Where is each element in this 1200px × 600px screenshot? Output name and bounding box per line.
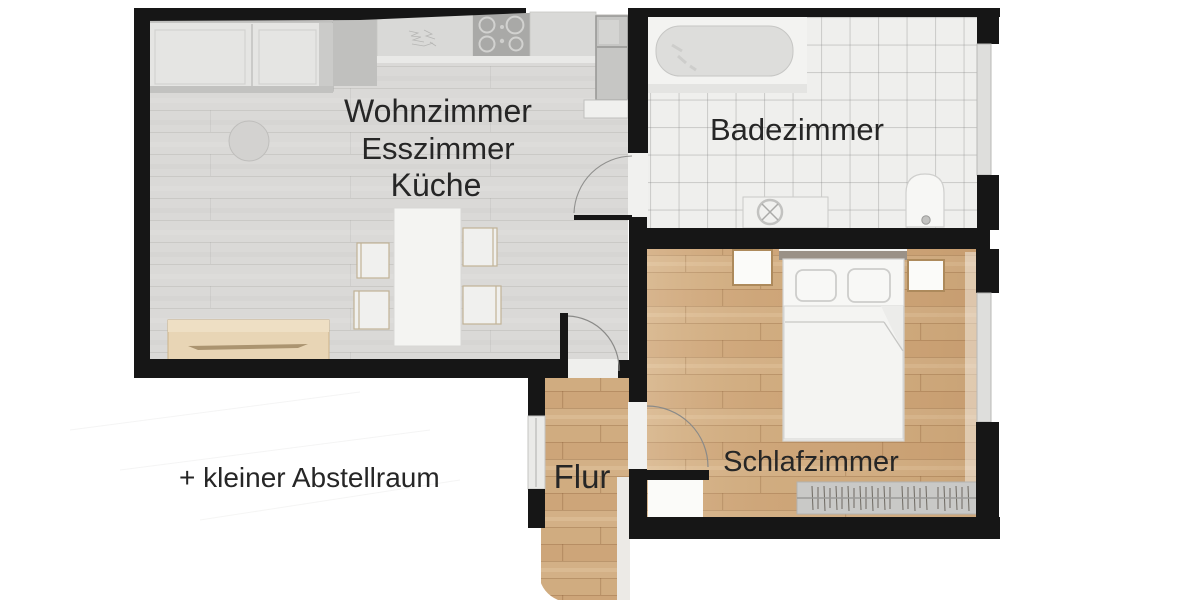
svg-text:Schlafzimmer: Schlafzimmer <box>723 446 899 478</box>
svg-text:Badezimmer: Badezimmer <box>710 112 884 147</box>
svg-text:Flur: Flur <box>554 458 611 495</box>
svg-text:Wohnzimmer: Wohnzimmer <box>344 93 532 129</box>
svg-text:+ kleiner Abstellraum: + kleiner Abstellraum <box>179 462 440 493</box>
svg-text:Küche: Küche <box>391 167 482 203</box>
svg-text:Esszimmer: Esszimmer <box>361 131 514 166</box>
